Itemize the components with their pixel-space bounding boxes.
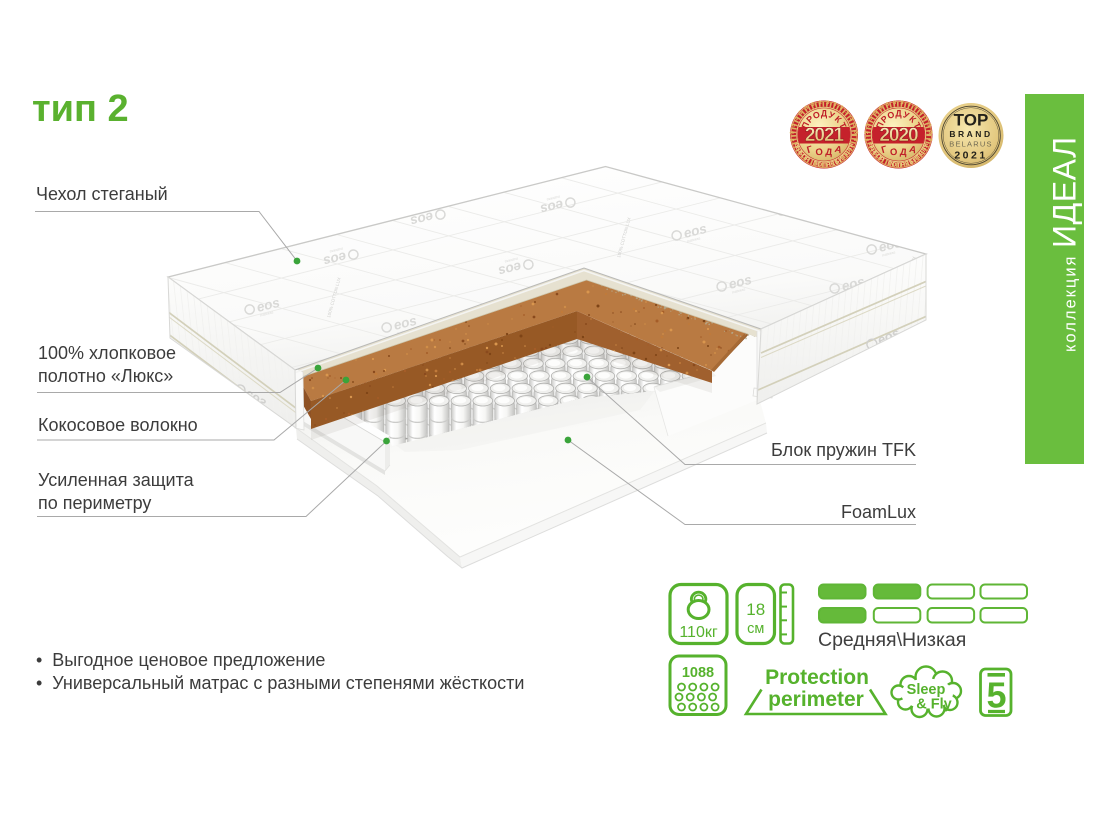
svg-text:по периметру: по периметру — [38, 493, 151, 513]
svg-text:eos: eos — [456, 173, 483, 193]
svg-text:1088: 1088 — [682, 665, 714, 681]
svg-text:• Выгодное ценовое предложени: • Выгодное ценовое предложение — [36, 650, 325, 670]
svg-text:О: О — [815, 147, 823, 159]
svg-text:полотно «Люкс»: полотно «Люкс» — [38, 366, 173, 386]
svg-text:Д: Д — [825, 147, 833, 159]
svg-text:тип 2: тип 2 — [32, 88, 129, 130]
svg-text:Д: Д — [899, 147, 907, 159]
svg-text:3: 3 — [852, 131, 858, 134]
svg-text:BELARUS: BELARUS — [949, 140, 992, 149]
svg-text:100% хлопковое: 100% хлопковое — [38, 343, 176, 363]
svg-text:О: О — [890, 147, 898, 159]
svg-text:Усиленная защита: Усиленная защита — [38, 470, 195, 490]
svg-text:3: 3 — [900, 100, 904, 106]
svg-text:3: 3 — [790, 131, 796, 134]
svg-text:mattress: mattress — [464, 170, 479, 177]
svg-text:2020: 2020 — [879, 125, 918, 146]
svg-text:3: 3 — [864, 131, 870, 134]
svg-text:• Универсальный матрас с разн: • Универсальный матрас с разными степеня… — [36, 673, 524, 693]
svg-text:см: см — [747, 621, 764, 637]
svg-text:Protection: Protection — [765, 666, 869, 689]
svg-text:Средняя\Низкая: Средняя\Низкая — [818, 629, 966, 651]
svg-text:FoamLux: FoamLux — [841, 502, 916, 522]
svg-text:Блок пружин TFK: Блок пружин TFK — [771, 440, 916, 460]
svg-text:3: 3 — [826, 100, 830, 106]
svg-text:perimeter: perimeter — [768, 688, 864, 711]
svg-text:Чехол стеганый: Чехол стеганый — [36, 184, 168, 204]
svg-text:& Fly: & Fly — [916, 697, 951, 713]
svg-text:Кокосовое волокно: Кокосовое волокно — [38, 415, 198, 435]
svg-text:eos: eos — [787, 196, 814, 216]
svg-text:BRAND: BRAND — [949, 129, 992, 139]
svg-text:110кг: 110кг — [679, 624, 718, 641]
svg-text:2021: 2021 — [954, 150, 987, 162]
svg-text:TOP: TOP — [954, 111, 989, 130]
svg-text:5: 5 — [986, 675, 1006, 716]
svg-text:18: 18 — [746, 600, 765, 619]
svg-text:3: 3 — [927, 131, 933, 134]
